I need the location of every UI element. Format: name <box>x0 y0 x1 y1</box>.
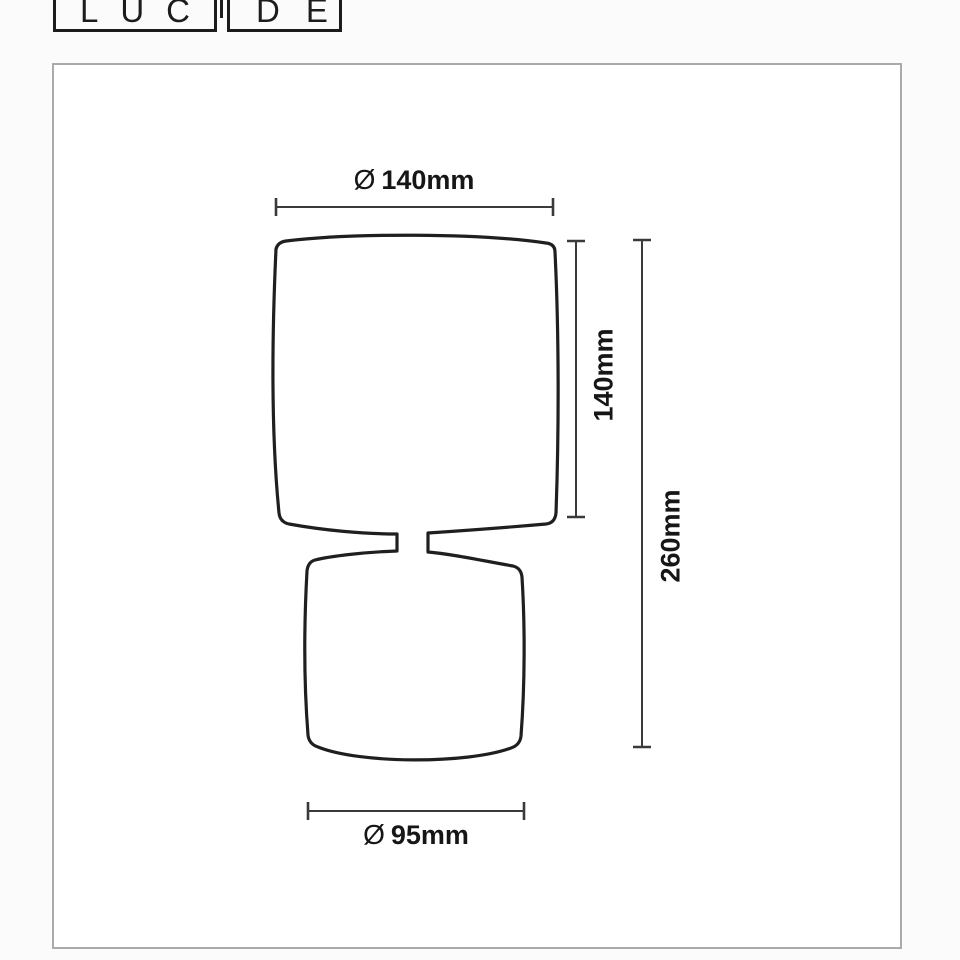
total-height-value: 260mm <box>656 489 686 582</box>
diameter-symbol: Ø <box>354 164 382 195</box>
shade-height-value: 140mm <box>589 328 619 421</box>
dimension-label-base-diameter: Ø95mm <box>363 821 469 849</box>
base-diameter-value: 95mm <box>391 820 469 850</box>
shade-diameter-value: 140mm <box>381 165 474 195</box>
lamp-outline <box>273 235 558 760</box>
dimension-label-total-height: 260mm <box>658 489 685 582</box>
dimension-label-shade-diameter: Ø140mm <box>354 166 475 194</box>
table-lamp-dimension-drawing <box>0 0 960 960</box>
diameter-symbol: Ø <box>363 819 391 850</box>
dimension-lines <box>276 198 651 820</box>
product-dimension-sheet: LUC DE Ø140mm 140mm 26 <box>0 0 960 960</box>
dimension-label-shade-height: 140mm <box>591 328 618 421</box>
